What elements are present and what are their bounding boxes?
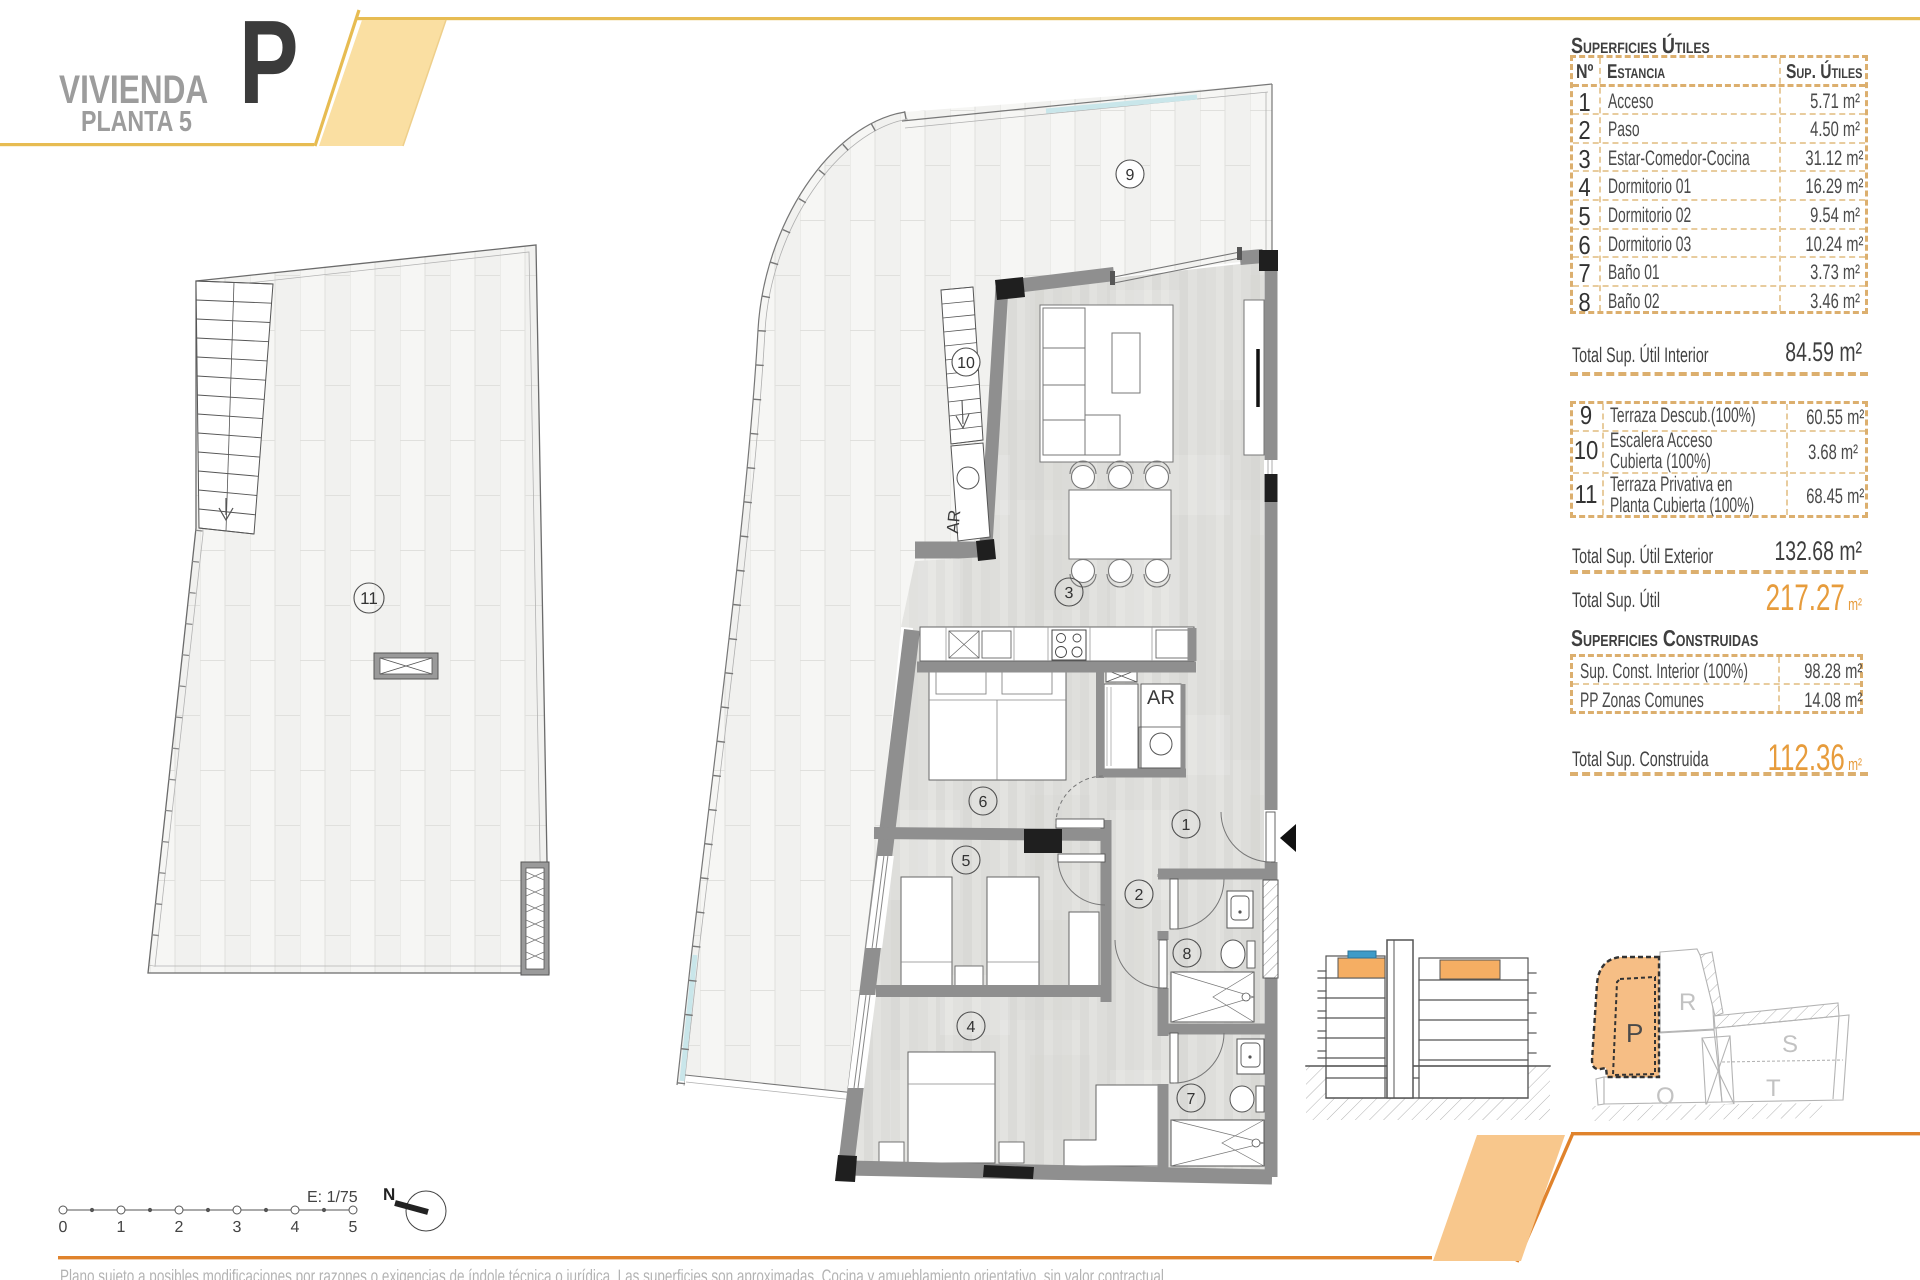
svg-text:N: N bbox=[383, 1185, 395, 1204]
svg-text:9: 9 bbox=[1126, 167, 1135, 184]
svg-text:1: 1 bbox=[117, 1219, 126, 1236]
svg-text:R: R bbox=[1679, 989, 1696, 1016]
svg-text:5: 5 bbox=[349, 1219, 358, 1236]
svg-text:10: 10 bbox=[957, 355, 975, 372]
svg-text:AR: AR bbox=[943, 509, 964, 534]
svg-text:P: P bbox=[1626, 1018, 1643, 1048]
svg-text:2: 2 bbox=[1135, 887, 1144, 904]
svg-text:AR: AR bbox=[1147, 687, 1175, 709]
svg-text:1: 1 bbox=[1182, 817, 1191, 834]
svg-text:2: 2 bbox=[175, 1219, 184, 1236]
svg-text:8: 8 bbox=[1183, 946, 1192, 963]
svg-text:5: 5 bbox=[962, 853, 971, 870]
svg-text:E: 1/75: E: 1/75 bbox=[307, 1189, 358, 1206]
svg-text:3: 3 bbox=[1065, 585, 1074, 602]
svg-text:0: 0 bbox=[59, 1219, 68, 1236]
svg-text:11: 11 bbox=[360, 589, 378, 608]
svg-text:6: 6 bbox=[979, 794, 988, 811]
svg-text:O: O bbox=[1656, 1083, 1675, 1110]
svg-text:7: 7 bbox=[1187, 1091, 1196, 1108]
svg-text:4: 4 bbox=[967, 1019, 976, 1036]
svg-text:S: S bbox=[1782, 1031, 1798, 1058]
svg-text:T: T bbox=[1766, 1075, 1781, 1102]
svg-text:3: 3 bbox=[233, 1219, 242, 1236]
svg-text:4: 4 bbox=[291, 1219, 300, 1236]
